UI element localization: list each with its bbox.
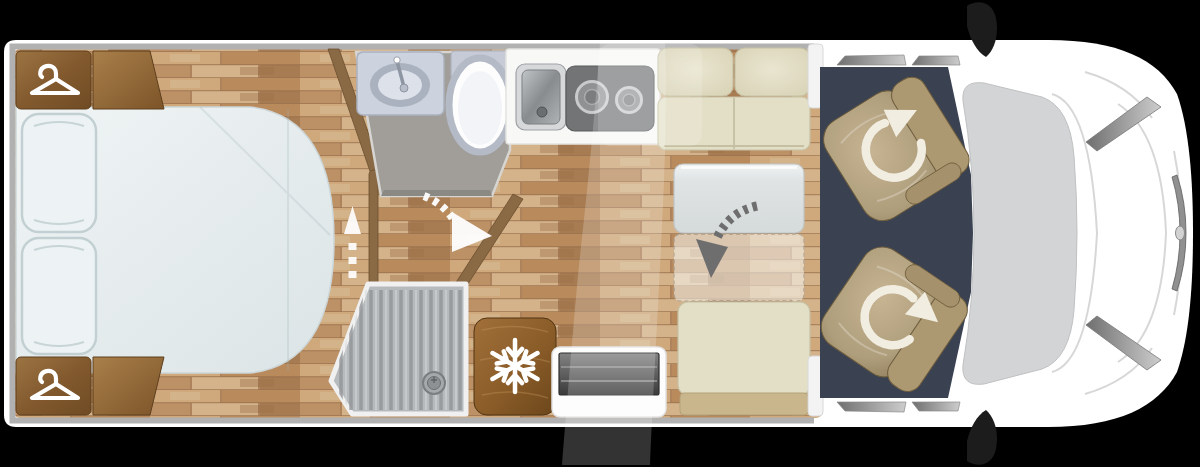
light-streak-overlay-top xyxy=(598,44,702,146)
bench-seat-bottom xyxy=(678,302,810,395)
bench-back-cushion-right xyxy=(735,48,810,96)
floorplan-svg xyxy=(0,0,1200,467)
front-badge xyxy=(1176,226,1185,240)
cab-door-trim-bottom-right xyxy=(912,402,960,411)
cab xyxy=(813,55,977,412)
table-extension-outline xyxy=(674,234,804,301)
cab-door-trim-top-left xyxy=(837,55,906,65)
pillow-top xyxy=(22,114,96,232)
partition-post xyxy=(369,170,378,288)
washbasin-faucet-handle xyxy=(394,57,400,63)
fridge-freezer xyxy=(474,318,556,415)
toilet-seat xyxy=(458,71,502,145)
bathroom xyxy=(356,51,511,196)
cab-door-trim-bottom-left xyxy=(837,402,906,412)
sink-drain xyxy=(537,107,547,117)
floorplan-stage xyxy=(0,0,1200,467)
washbasin-faucet-base xyxy=(400,84,408,92)
windshield xyxy=(963,83,1077,385)
bathroom-floor-edge xyxy=(381,190,492,196)
dinette-table xyxy=(674,164,804,233)
bench-base-bottom xyxy=(680,393,808,415)
cab-door-trim-top-right xyxy=(912,56,960,65)
pillow-bottom xyxy=(22,238,96,354)
